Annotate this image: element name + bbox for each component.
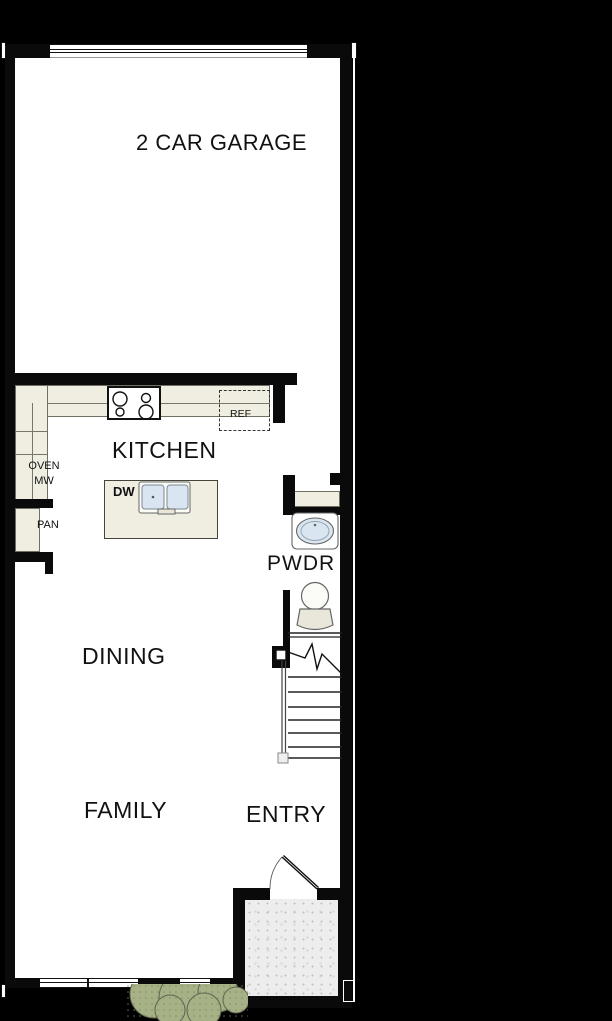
family-window [40, 978, 138, 988]
powder-closet-shelf [290, 491, 340, 507]
room-label-kitchen: KITCHEN [112, 438, 216, 462]
garage-door-panel-line [50, 49, 307, 50]
porch-step-outline [343, 980, 355, 1002]
window-glazing-line [180, 982, 210, 983]
stair-break-line [288, 644, 342, 674]
wall-left [5, 44, 15, 988]
cabinet-divider [16, 454, 47, 455]
wall-garage-kitchen [5, 373, 297, 385]
cabinet-divider [16, 431, 47, 432]
porch [245, 899, 338, 996]
island-sink-icon [138, 481, 192, 517]
wall [15, 499, 53, 508]
fixture-label-refrigerator: REF [230, 409, 251, 420]
room-label-garage: 2 CAR GARAGE [136, 131, 307, 154]
exterior-outline [353, 58, 355, 1002]
cooktop-icon [107, 386, 161, 420]
garage-door [50, 44, 307, 58]
wall [45, 552, 53, 574]
wall-powder [330, 473, 342, 485]
stairs [268, 626, 354, 768]
newel-post [276, 650, 286, 660]
room-label-powder: PWDR [267, 553, 335, 575]
jamb-tick [1, 984, 6, 998]
porch-wall-bottom [233, 996, 352, 1008]
entry-door-icon [258, 848, 330, 894]
room-label-family: FAMILY [84, 798, 167, 822]
oven-label: OVEN [28, 460, 59, 472]
jamb-tick [351, 42, 357, 59]
wall [273, 385, 285, 423]
floor-plan-canvas: { "plan": { "rooms": { "garage": "2 CAR … [0, 0, 612, 1021]
toilet-icon [294, 580, 338, 634]
vanity-sink-icon [291, 512, 339, 552]
room-label-entry: ENTRY [246, 802, 326, 826]
room-label-dining: DINING [82, 644, 166, 668]
bush-icon [126, 984, 248, 1021]
fixture-label-oven-mw: OVEN MW [22, 459, 66, 489]
wall-right [340, 44, 352, 900]
fixture-label-dishwasher: DW [113, 485, 135, 499]
window-glazing-line [40, 982, 138, 983]
garage-door-panel-line [50, 52, 307, 53]
newel-post [278, 753, 288, 763]
floor-family-lower [5, 900, 240, 988]
window-mullion [87, 979, 89, 987]
microwave-label: MW [34, 475, 54, 487]
jamb-tick [1, 42, 6, 59]
wall-bottom [5, 978, 40, 988]
fixture-label-pantry: PAN [37, 520, 59, 532]
